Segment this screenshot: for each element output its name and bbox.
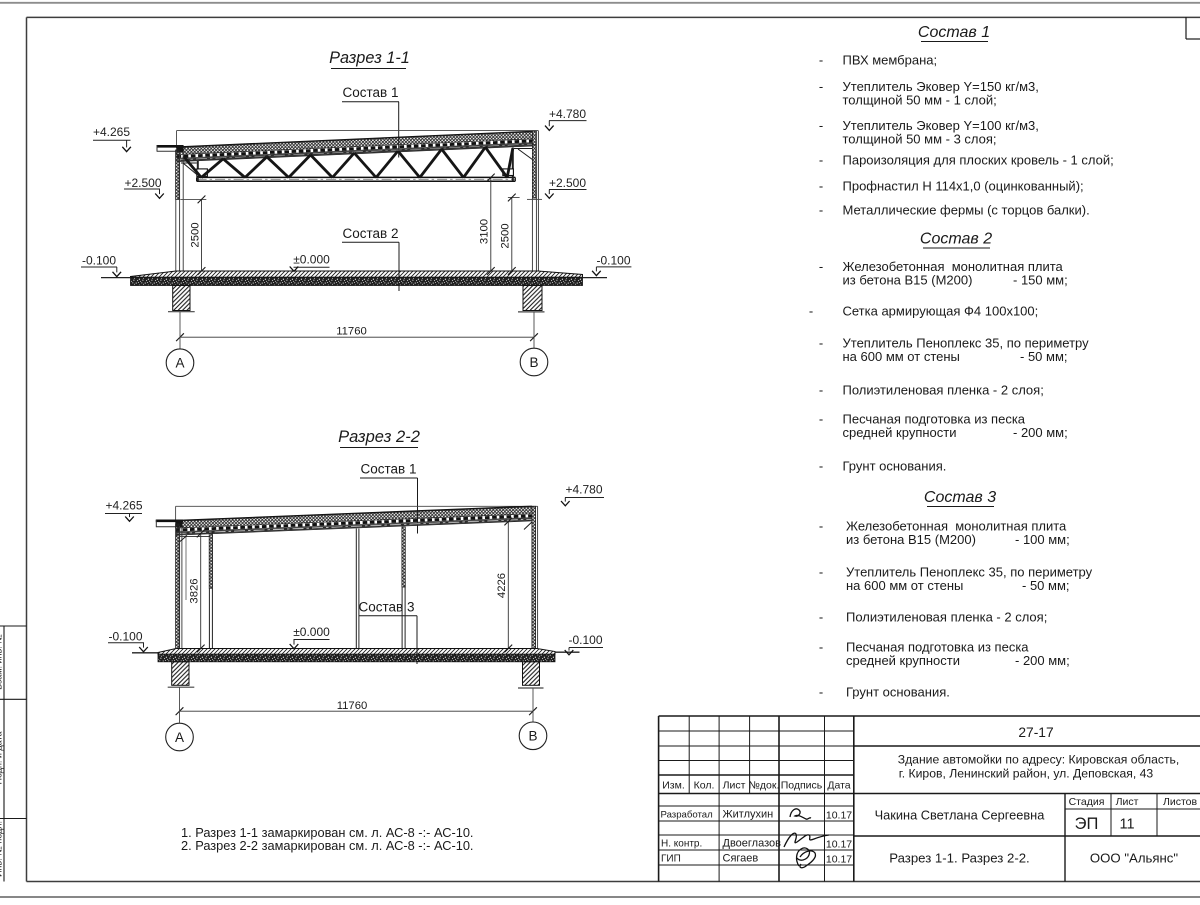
svg-text:А: А [175,730,184,745]
svg-text:Полиэтиленовая пленка - 2 слоя: Полиэтиленовая пленка - 2 слоя; [843,383,1044,398]
svg-text:Дата: Дата [827,780,850,792]
svg-text:3826: 3826 [189,578,201,603]
svg-text:-: - [819,519,823,534]
svg-text:-0.100: -0.100 [108,630,142,644]
svg-text:Разрез 1-1: Разрез 1-1 [329,49,410,67]
svg-text:Здание автомойки по адресу: Ки: Здание автомойки по адресу: Кировская об… [898,753,1180,767]
svg-text:Лист: Лист [1116,796,1139,808]
svg-text:Инв. № подл.: Инв. № подл. [0,821,4,877]
svg-text:10.17: 10.17 [826,810,852,822]
svg-text:Состав 3: Состав 3 [359,600,415,615]
svg-text:Грунт основания.: Грунт основания. [846,685,950,700]
svg-text:-: - [819,179,823,194]
svg-text:Пароизоляция для плоских крове: Пароизоляция для плоских кровель - 1 сло… [843,153,1114,168]
svg-text:Сетка армирующая Ф4 100х100;: Сетка армирующая Ф4 100х100; [843,304,1039,319]
svg-text:- 150 мм;: - 150 мм; [1013,272,1068,287]
svg-text:Состав 1: Состав 1 [343,85,399,100]
svg-text:-0.100: -0.100 [568,633,602,647]
svg-text:на 600 мм от стены: на 600 мм от стены [846,578,963,593]
svg-text:Лист: Лист [723,780,746,792]
svg-text:±0.000: ±0.000 [293,625,330,639]
svg-text:Разрез 2-2: Разрез 2-2 [338,428,420,446]
svg-text:+4.780: +4.780 [565,483,602,497]
svg-text:2. Разрез 2-2 замаркирован см.: 2. Разрез 2-2 замаркирован см. л. АС-8 -… [181,838,474,853]
svg-text:ЭП: ЭП [1075,815,1099,833]
svg-text:2500: 2500 [189,222,201,247]
svg-text:Сягаев: Сягаев [723,853,759,865]
svg-text:Профнастил Н 114х1,0 (оцинкова: Профнастил Н 114х1,0 (оцинкованный); [843,179,1084,194]
svg-text:Подпись: Подпись [781,780,823,792]
svg-text:2500: 2500 [500,223,512,248]
svg-text:толщиной 50 мм - 3 слоя;: толщиной 50 мм - 3 слоя; [843,131,997,146]
svg-text:11760: 11760 [337,700,368,712]
svg-text:- 200 мм;: - 200 мм; [1015,653,1070,668]
svg-text:Листов: Листов [1163,796,1198,808]
svg-text:-0.100: -0.100 [82,254,116,268]
svg-text:№док.: №док. [749,780,780,792]
svg-text:Полиэтиленовая пленка - 2 слоя: Полиэтиленовая пленка - 2 слоя; [846,610,1047,625]
svg-text:27-17: 27-17 [1018,725,1053,740]
svg-text:г. Киров, Ленинский район, ул.: г. Киров, Ленинский район, ул. Деповская… [899,767,1154,781]
svg-text:Житлухин: Житлухин [723,809,774,821]
svg-text:-: - [819,259,823,274]
svg-text:В: В [529,355,538,370]
svg-text:Металлические фермы (с торцов: Металлические фермы (с торцов балки). [843,203,1090,218]
svg-text:-: - [819,459,823,474]
svg-text:+2.500: +2.500 [124,176,161,190]
svg-text:3100: 3100 [479,219,491,244]
svg-text:на 600 мм от стены: на 600 мм от стены [843,349,960,364]
svg-text:из бетона В15 (М200): из бетона В15 (М200) [846,532,976,547]
svg-text:Н. контр.: Н. контр. [661,839,702,850]
svg-text:Состав 2: Состав 2 [920,231,992,248]
svg-text:Грунт основания.: Грунт основания. [843,459,947,474]
svg-text:- 50 мм;: - 50 мм; [1020,349,1068,364]
svg-text:-: - [819,203,823,218]
svg-text:Состав 1: Состав 1 [918,24,990,41]
svg-text:-0.100: -0.100 [596,254,630,268]
svg-text:Разрез 1-1. Разрез 2-2.: Разрез 1-1. Разрез 2-2. [889,851,1029,866]
svg-text:Кол.: Кол. [694,780,715,792]
svg-text:ООО "Альянс": ООО "Альянс" [1090,851,1178,866]
svg-text:Разработал: Разработал [661,810,713,821]
svg-text:+2.500: +2.500 [549,176,586,190]
svg-text:из бетона В15 (М200): из бетона В15 (М200) [843,272,973,287]
svg-text:толщиной 50 мм - 1 слой;: толщиной 50 мм - 1 слой; [843,92,997,107]
svg-text:ГИП: ГИП [661,854,681,865]
svg-text:Стадия: Стадия [1069,796,1105,808]
svg-text:-: - [819,640,823,655]
svg-text:А: А [175,356,184,371]
svg-text:Состав 2: Состав 2 [343,226,399,241]
svg-text:Чакина Светлана Сергеевна: Чакина Светлана Сергеевна [875,808,1046,823]
svg-text:-: - [809,304,813,319]
svg-text:-: - [819,412,823,427]
svg-text:-: - [819,153,823,168]
svg-text:средней крупности: средней крупности [846,653,960,668]
svg-text:Изм.: Изм. [662,780,685,792]
svg-text:-: - [819,79,823,94]
svg-text:- 200 мм;: - 200 мм; [1013,425,1068,440]
svg-text:4226: 4226 [496,573,508,598]
svg-text:11: 11 [1119,817,1134,833]
svg-text:Подп. и дата: Подп. и дата [0,731,4,784]
svg-text:Состав 3: Состав 3 [924,489,996,506]
svg-text:-: - [819,383,823,398]
svg-text:-: - [819,565,823,580]
svg-text:10.17: 10.17 [826,854,852,866]
svg-text:11760: 11760 [336,326,367,338]
svg-text:-: - [819,118,823,133]
svg-text:-: - [819,685,823,700]
svg-text:средней крупности: средней крупности [843,425,957,440]
svg-text:+4.780: +4.780 [549,107,586,121]
svg-text:-: - [819,53,823,68]
svg-text:Двоеглазов: Двоеглазов [723,838,782,850]
svg-text:-: - [819,610,823,625]
svg-text:Взам. инв. №: Взам. инв. № [0,634,4,690]
svg-text:- 100 мм;: - 100 мм; [1015,532,1070,547]
svg-text:10.17: 10.17 [826,839,852,851]
svg-text:+4.265: +4.265 [105,499,142,513]
svg-text:- 50 мм;: - 50 мм; [1022,578,1070,593]
svg-text:-: - [819,336,823,351]
svg-text:Состав 1: Состав 1 [361,462,417,477]
svg-text:В: В [528,729,537,744]
svg-text:ПВХ мембрана;: ПВХ мембрана; [843,53,938,68]
svg-text:+4.265: +4.265 [93,125,130,139]
svg-text:±0.000: ±0.000 [293,253,330,267]
